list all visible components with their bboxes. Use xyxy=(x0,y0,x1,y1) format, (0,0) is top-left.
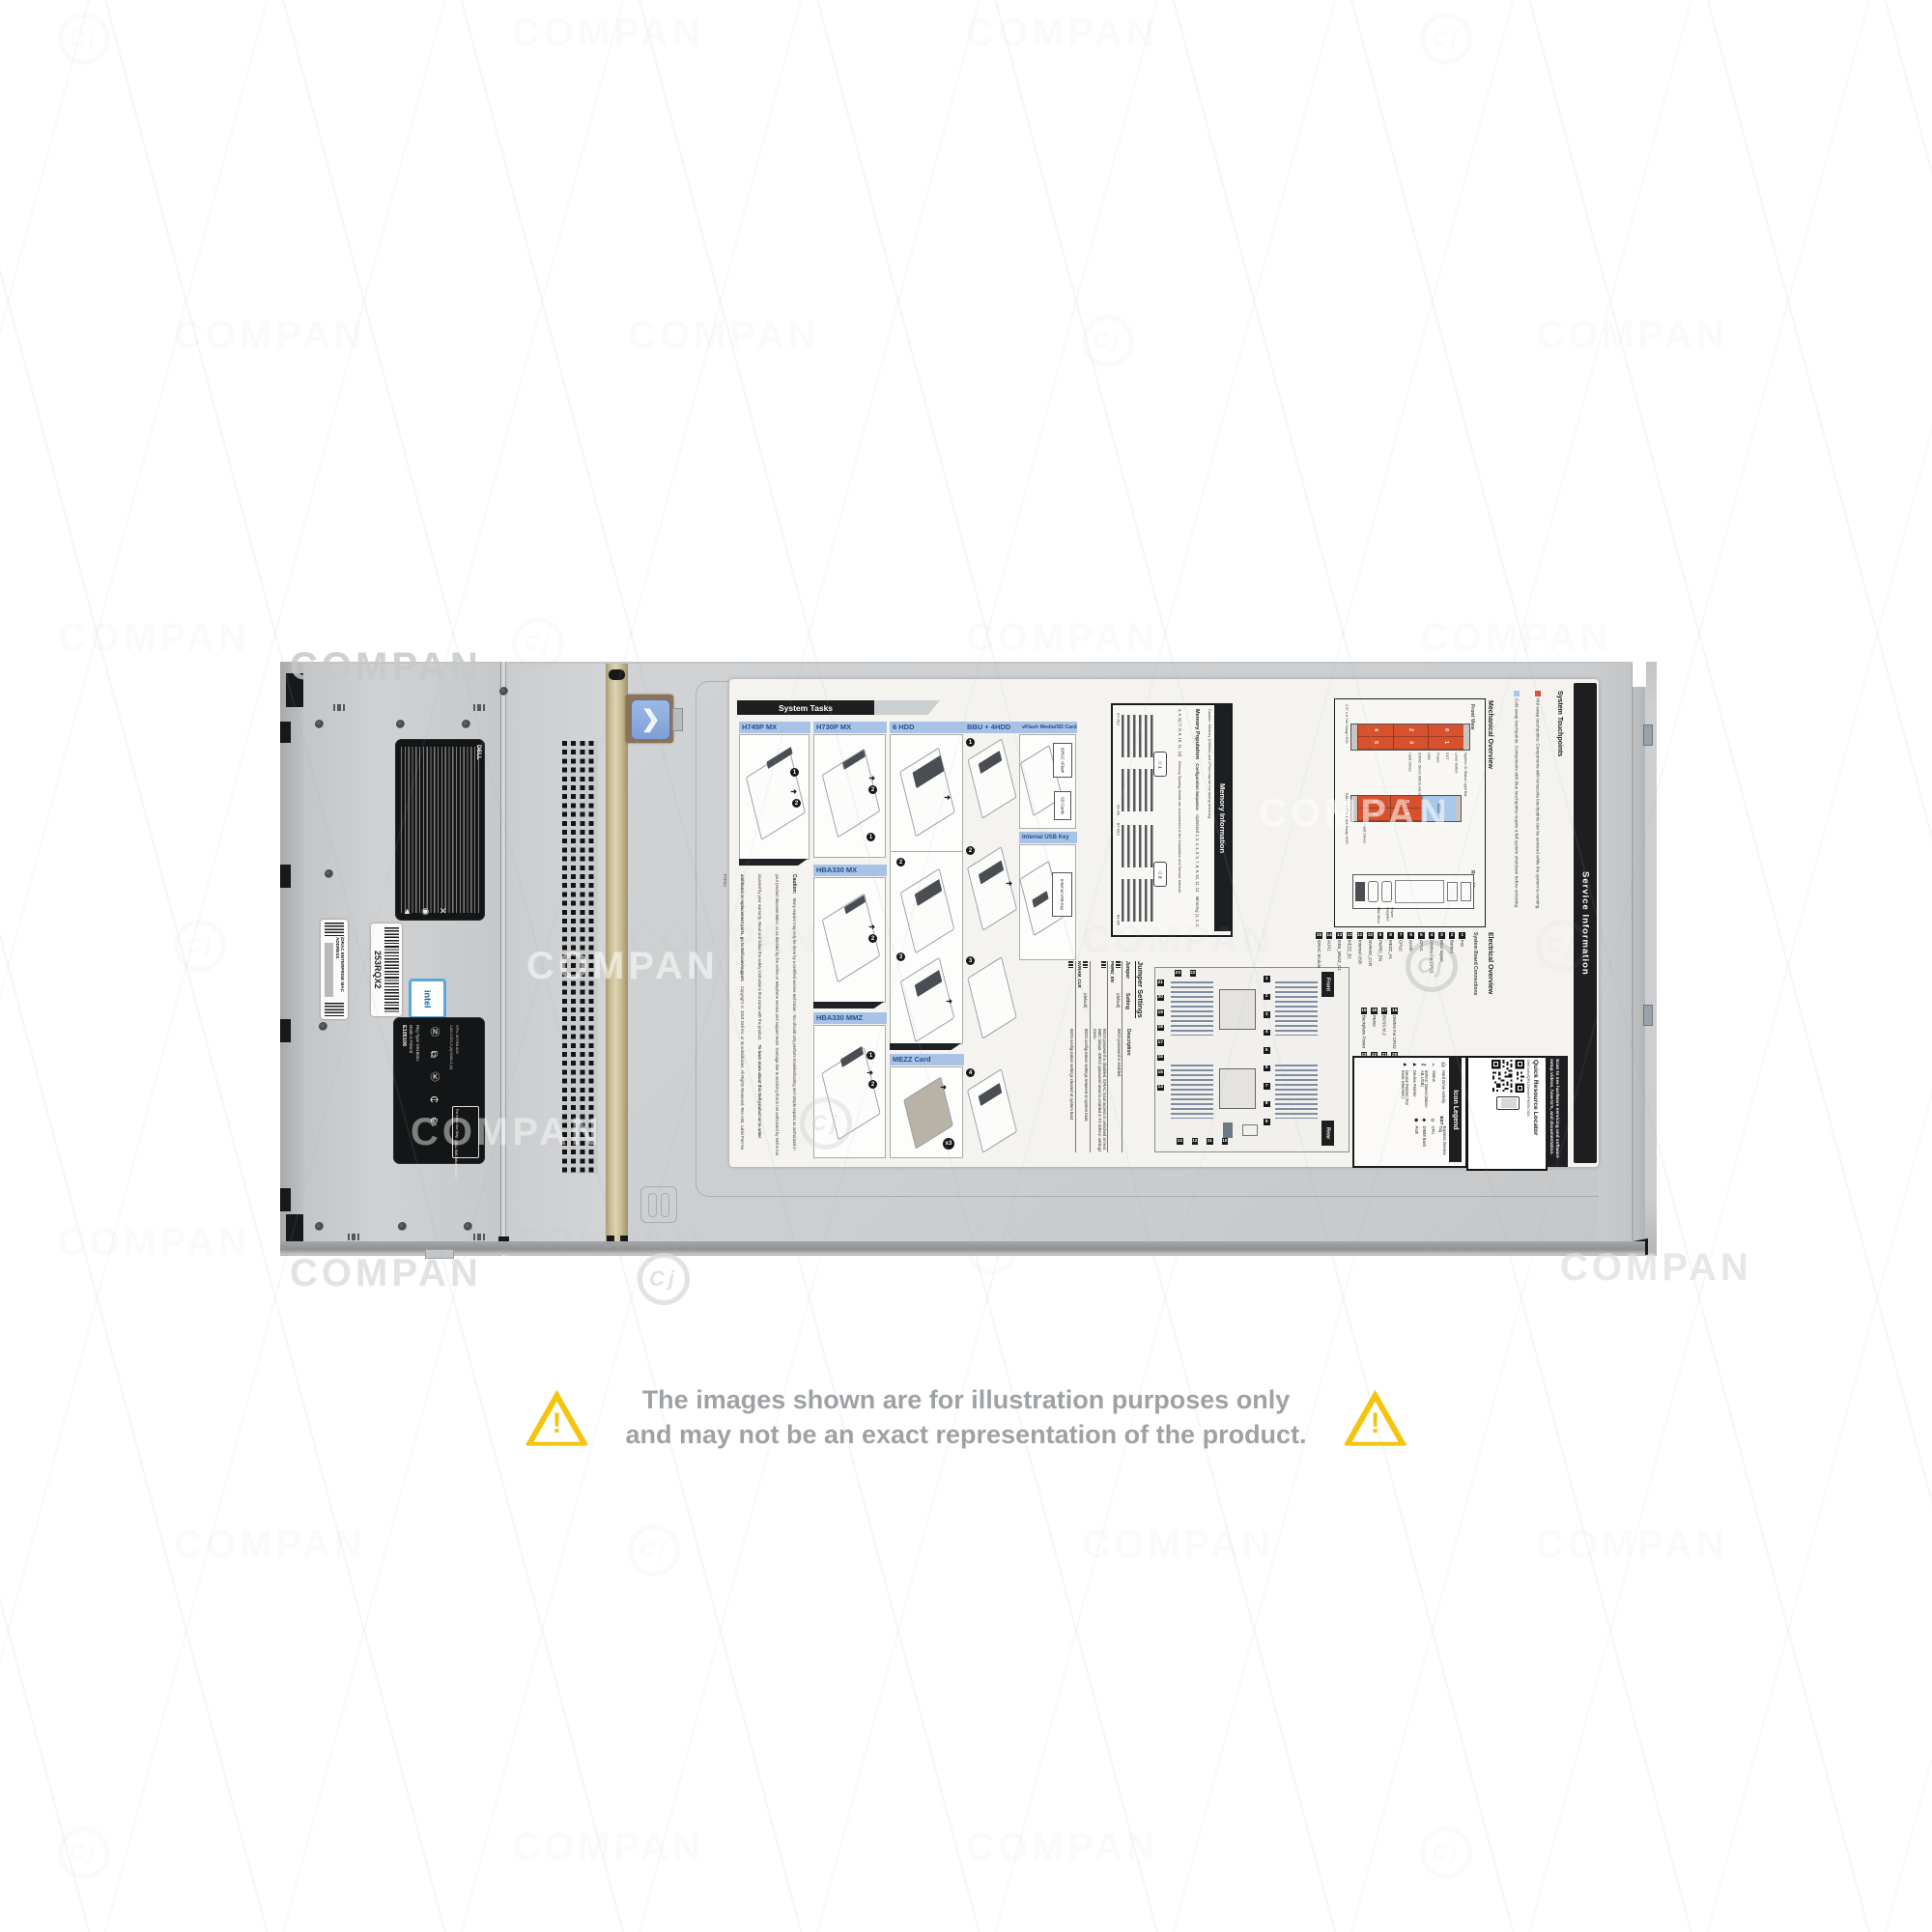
screw xyxy=(315,720,324,728)
memory-title: Memory Information xyxy=(1218,783,1227,853)
legend-icon: ▲ xyxy=(1402,1061,1407,1068)
hinge-bolt xyxy=(609,669,625,680)
callout-label: System ID Status Light Bar xyxy=(1463,753,1467,791)
jumper-pin-icon xyxy=(1116,961,1121,968)
rivet xyxy=(348,1234,359,1240)
board-dimm-slats xyxy=(1275,1065,1318,1119)
scan-band: Scan to see hardware servicing and softw… xyxy=(1546,1056,1568,1167)
regulatory-icons: ▲ ◉ ✕ xyxy=(403,906,450,917)
reg-type: Reg Type: E04B001 xyxy=(415,1025,420,1061)
jumper-row: BIOS password is disabled. iDRAC local a… xyxy=(1092,961,1108,1152)
electrical-item: 3 BBU Signal xyxy=(1436,932,1447,990)
memory-information-box: Memory Information Caution: Memory (DIMM… xyxy=(1111,703,1233,937)
idrac-mac-sticker: iDRAC ENTERPRISE MAC ADDRESS xyxy=(321,920,348,1019)
legend-icon: ◆ xyxy=(1421,1116,1427,1123)
icon-legend-title: Icon Legend xyxy=(1452,1090,1459,1129)
bezel-tab xyxy=(280,865,291,888)
electrical-item: 9 PWRD_EN xyxy=(1376,932,1386,990)
cpu-box: ◇ 2 xyxy=(1153,862,1167,887)
screw xyxy=(396,720,405,728)
service-label: System Tasks H745P MX 1 ➜ 2 Caution: Man… xyxy=(729,679,1599,1167)
india-box: For India Use Only DELL EMC Model: E48S xyxy=(452,1106,479,1158)
callout-label: Hard Drives xyxy=(1407,753,1412,791)
qrl-title: Quick Resource Locator xyxy=(1532,1060,1539,1162)
task-panel: 2 3 ➜ xyxy=(890,851,963,1044)
bbu-text: BBU xyxy=(1437,804,1442,813)
bottom-tab xyxy=(425,1249,454,1259)
task-panel: ➜2 xyxy=(813,877,886,1003)
electrical-item: 13 MINI_MEZZ_C1 xyxy=(1334,932,1345,990)
callout-text: SD Cards xyxy=(1061,797,1065,814)
product-photo-page: CjCOMPANCOMPANCjCOMPANCOMPANCjCOMPANCOMP… xyxy=(0,0,1932,1932)
diag1-label: 2.5" x 6 Hot Swap HDD xyxy=(1338,704,1349,760)
board-badge: 9 xyxy=(1264,1119,1270,1125)
mac-barcode xyxy=(325,1003,344,1016)
board-badge: 13 xyxy=(1177,1138,1183,1145)
cold-swap-bullet xyxy=(1514,691,1520,696)
front-view-callouts: System ID Status Light BarLever ButtonES… xyxy=(1353,753,1467,791)
legend-icon: ▲ xyxy=(1411,1061,1417,1068)
watermark-text: COMPAN xyxy=(1536,1523,1728,1567)
board-badge: 5 xyxy=(1264,1047,1270,1054)
drive-cell: 2 3 xyxy=(1357,796,1390,821)
board-badge: 18 xyxy=(1157,1025,1164,1032)
board-badge: 22 xyxy=(1190,970,1197,977)
board-badge: 23 xyxy=(1175,970,1181,977)
task-header-bbu4hdd: BBU + 4HDD xyxy=(964,722,1019,733)
right-cap-cut xyxy=(1633,662,1646,687)
x3-badge: x3 xyxy=(943,1138,954,1150)
panel-shadow-bar xyxy=(739,859,808,866)
screw xyxy=(325,869,333,878)
legend-item: ◇ CPU xyxy=(1430,1116,1435,1159)
rear-view-callouts: Power SuppliesMini Mezz xyxy=(1355,907,1394,924)
service-tag-text: 253RQX2 xyxy=(373,933,383,1007)
right-end-cap xyxy=(1599,664,1645,1244)
panel-shadow-bar xyxy=(890,1043,961,1050)
callout-idrac-vflash: iDRAC vFlash xyxy=(1053,743,1072,778)
task-header-hba330mmz: HBA330 MMZ xyxy=(813,1012,887,1024)
electrical-item: 7 CPU2 xyxy=(1396,932,1406,990)
electrical-item: 17 BOSS M.2 xyxy=(1379,1008,1390,1052)
callout-internal-usb: Internal USB Key xyxy=(1052,872,1072,917)
board-connector xyxy=(1242,1124,1258,1136)
board-dimm-slats xyxy=(1275,981,1318,1036)
rivet xyxy=(333,704,345,711)
task-header-hba330mx: HBA330 MX xyxy=(813,865,887,876)
jumper-col-header: Jumper xyxy=(1124,961,1130,990)
board-badge: 17 xyxy=(1157,1039,1164,1046)
callout-text: iDRAC vFlash xyxy=(1061,748,1065,773)
qrl-box: Quick Resource Locator Dell.com/QRL/Serv… xyxy=(1466,1056,1548,1171)
watermark-text: COMPAN xyxy=(512,1826,704,1869)
legend-item: ◉ Path xyxy=(1413,1116,1419,1159)
board-badge: 2 xyxy=(1264,994,1270,1001)
task-panel: ➜ xyxy=(890,734,963,852)
legend-item: ▲ Device Pointer xyxy=(1411,1061,1417,1112)
board-badge: 19 xyxy=(1157,1009,1164,1016)
front-view-callouts2: Hard Drives xyxy=(1362,824,1420,853)
callout-label: USB xyxy=(1426,753,1431,791)
watermark-text: COMPAN xyxy=(512,12,704,55)
board-badge: 7 xyxy=(1264,1083,1270,1090)
memory-note: Memory Sparing details are documented in… xyxy=(1178,761,1182,894)
mac-blur xyxy=(325,943,333,997)
board-badge: 4 xyxy=(1264,1030,1270,1037)
dimm-slots xyxy=(1122,715,1156,757)
legend-icon: ⚷ xyxy=(1420,1061,1427,1068)
mac-barcode xyxy=(325,923,344,936)
panel-seam xyxy=(500,662,509,1256)
memory-title-band: Memory Information xyxy=(1214,705,1231,931)
x3-text: x3 xyxy=(946,1141,952,1147)
board-badge: 15 xyxy=(1157,1069,1164,1076)
rivet xyxy=(473,1234,485,1240)
disclaimer-text: The images shown are for illustration pu… xyxy=(625,1383,1306,1452)
release-button[interactable]: ❯ xyxy=(631,699,670,740)
memory-population-title: Memory Population xyxy=(1194,709,1200,759)
watermark-text: COMPAN xyxy=(58,616,250,660)
model-text: DELL EMC Model: E48S xyxy=(454,1140,458,1178)
screw xyxy=(315,1222,324,1231)
board-connector xyxy=(1223,1122,1233,1138)
certification-label: E105106 Made in Poland Reg Type: E04B001… xyxy=(393,1017,485,1164)
watermark-logo-icon: Cj xyxy=(1420,1826,1472,1879)
electrical-item: 18 PERC xyxy=(1369,1008,1379,1052)
cpu-number: 2 xyxy=(1158,876,1163,879)
electrical-item: 10 NVRAM_CLR xyxy=(1365,932,1376,990)
watermark-text: COMPAN xyxy=(1082,1523,1274,1567)
watermark-text: COMPAN xyxy=(58,1221,250,1264)
cpu-number: 1 xyxy=(1158,766,1163,769)
legend-item: ⚷ iDRAC Direct (Micro-AB USB) xyxy=(1419,1061,1428,1112)
system-board-diagram: 2322 2120191817161514 123456789 13121110 xyxy=(1154,967,1350,1152)
task-panel: Internal USB Key xyxy=(1019,844,1076,960)
board-badge: 14 xyxy=(1157,1085,1164,1092)
electrical-item: 2 Battery xyxy=(1447,932,1458,990)
electrical-item: 14 AUX1 xyxy=(1324,932,1335,990)
ices-text: CAN ICES-3 (A)/NMB-3 (A) xyxy=(449,1025,453,1069)
board-badge: 1 xyxy=(1264,976,1270,982)
callout-sd-cards: SD Cards xyxy=(1054,791,1071,820)
board-badge: 21 xyxy=(1157,980,1164,986)
jumper-col-header: Setting xyxy=(1124,993,1130,1026)
electrical-item: 1 FIO xyxy=(1457,932,1467,990)
brand-text: DELL xyxy=(475,745,481,760)
task-panel: 1➜ 2 xyxy=(813,1025,886,1158)
electrical-item: 6 AUX0 xyxy=(1406,932,1416,990)
front-view-diagram-6hdd: 4 5 2 3 0 1 xyxy=(1350,724,1470,751)
electrical-items-row1: 1 FIO 2 Battery 3 BBU Signal 4 xyxy=(1321,932,1467,990)
watermark-text: COMPAN xyxy=(966,12,1158,55)
chassis-tab xyxy=(1643,724,1653,746)
qrl-url: Dell.com/QRL/Server/PEMX740c xyxy=(1526,1060,1531,1162)
dimm-slots xyxy=(1122,769,1156,811)
callout-label: Hard Drives xyxy=(1362,824,1367,853)
bbu-cell: BBU xyxy=(1422,796,1456,821)
watermark-logo-icon: Cj xyxy=(1420,12,1472,65)
bezel-tab xyxy=(280,722,291,743)
task-header-mezz: MEZZ Card xyxy=(890,1054,964,1065)
ul-number: E105106 xyxy=(401,1025,407,1046)
diag2-label: BBU + 2.5" x 4 Hot Swap HDD xyxy=(1338,793,1349,861)
jumper-rows: PWRD_EN (default) BIOS password is enabl… xyxy=(1067,961,1122,1152)
callout-label: Lever Button xyxy=(1454,753,1459,791)
disclaimer-line2: and may not be an exact representation o… xyxy=(625,1418,1306,1453)
watermark-text: COMPAN xyxy=(174,314,366,357)
electrical-item: 16 DIMMs For CPU2 xyxy=(1389,1008,1400,1052)
chassis-bottom-edge xyxy=(280,1241,1645,1255)
task-panel: ➜ x3 xyxy=(890,1066,963,1158)
task-header-usbkey: Internal USB Key xyxy=(1019,832,1077,843)
screw xyxy=(499,687,508,696)
legend-icon: EST xyxy=(1439,1116,1444,1123)
regulatory-microtext xyxy=(401,747,479,913)
bezel-tab xyxy=(280,1019,291,1042)
phone-icon xyxy=(1496,1096,1520,1110)
drive-cells: 4 5 2 3 0 1 xyxy=(1357,724,1463,750)
jumper-pin-icon xyxy=(1101,961,1106,968)
dimm-cluster-1: A7–A12 A1–A6 ◇ 1 xyxy=(1117,713,1167,815)
board-badges-left: 2120191817161514 xyxy=(1157,980,1164,1091)
callout-label: Power xyxy=(1435,753,1440,791)
system-tasks-header: System Tasks xyxy=(737,700,874,715)
jumper-row: BIOS configuration settings cleared at s… xyxy=(1067,961,1076,1152)
legend-items-right: EST Express Service Tag ◇ CPU xyxy=(1398,1116,1446,1159)
electrical-item: 8 MEZZ_A1 xyxy=(1385,932,1396,990)
electrical-item: 12 MEZZ_B1 xyxy=(1345,932,1355,990)
intel-logo-text: intel xyxy=(423,990,433,1009)
service-tag-barcode xyxy=(384,927,399,1012)
screw xyxy=(398,1222,407,1231)
cpu-box: ◇ 1 xyxy=(1153,752,1167,777)
board-badges-mid: 123456789 xyxy=(1264,976,1270,1125)
dimm-cluster-2: B7–B12 B1–B6 ◇ 2 xyxy=(1117,823,1167,925)
board-badges-bottom: 13121110 xyxy=(1177,1138,1228,1145)
warning-triangle-icon: ! xyxy=(1344,1390,1407,1446)
qr-code xyxy=(1492,1060,1524,1093)
caution-body: Many repairs may only be done by a certi… xyxy=(757,874,797,1155)
jumper-row: NVRAM_CLR (default) BIOS configuration s… xyxy=(1077,961,1091,1152)
dimm-group-label: A7–A12 xyxy=(1116,713,1120,725)
right-cap-seam xyxy=(1632,664,1634,1244)
callout-label: EST xyxy=(1444,753,1449,791)
jumper-title: Jumper Settings xyxy=(1135,961,1145,1018)
board-badge: 16 xyxy=(1157,1055,1164,1062)
icon-legend-box: Icon Legend ⛁ Hard Drive Activity xyxy=(1352,1056,1467,1168)
service-info-title-band: Service Information xyxy=(1574,683,1597,1163)
drive-cell: 0 1 xyxy=(1428,724,1463,750)
rear-tag-text: Rear xyxy=(1325,1127,1331,1139)
dimm-slots xyxy=(1122,879,1156,922)
caution-title: Caution: xyxy=(791,874,797,894)
screw xyxy=(462,720,470,728)
callout-label: Mini Mezz xyxy=(1376,907,1380,924)
india-text: For India Use Only xyxy=(455,1109,459,1138)
jumper-settings-section: Jumper Settings Jumper Setting Descripti… xyxy=(1038,961,1151,1152)
regulatory-label: DELL ▲ ◉ ✕ xyxy=(395,739,485,921)
legend-item: ⛁ Hard Drive Activity xyxy=(1439,1061,1446,1112)
watermark-logo-icon: Cj xyxy=(58,12,110,65)
task-header-h730p: H730P MX xyxy=(813,722,887,733)
legend-item: ◆ DIMM Bank xyxy=(1421,1116,1427,1159)
board-badges-top: 2322 xyxy=(1175,970,1196,977)
task-panel: iDRAC vFlash SD Cards xyxy=(1019,734,1076,829)
intel-badge: intel xyxy=(409,979,446,1019)
task-header-vflash: vFlash Media/SD Card xyxy=(1019,722,1077,733)
gold-hinge-strip xyxy=(606,664,628,1244)
board-cpu2 xyxy=(1219,1068,1256,1109)
disclaimer: ! The images shown are for illustration … xyxy=(0,1383,1932,1452)
electrical-item: 15 iDRAC Module xyxy=(1314,932,1324,990)
legend-icon: ⛁ xyxy=(1439,1061,1446,1068)
memory-row-optimized: Optimized 1, 2, 3, 4, 5, 6, 7, 8, 9, 10,… xyxy=(1195,814,1200,892)
electrical-item: 4 DIMMs For CPU1 xyxy=(1427,932,1437,990)
system-tasks-header-tab xyxy=(874,700,940,715)
callout-text: Internal USB Key xyxy=(1060,879,1065,910)
legend-icon: ◇ xyxy=(1430,1116,1435,1123)
rear-view-diagram xyxy=(1352,874,1474,909)
icon-legend-title-band: Icon Legend xyxy=(1449,1058,1462,1162)
jumper-pin-icon xyxy=(1068,961,1073,968)
jumper-row: PWRD_EN (default) BIOS password is enabl… xyxy=(1110,961,1123,1152)
watermark-logo-icon: Cj xyxy=(638,1252,690,1305)
drive-cell: 2 3 xyxy=(1393,724,1429,750)
drive-cell: 4 5 xyxy=(1357,724,1393,750)
release-button-frame: ❯ xyxy=(626,695,673,743)
callout-label: Power Supplies xyxy=(1385,907,1394,924)
watermark-logo-icon: Cj xyxy=(174,919,226,972)
scan-text: Scan to see hardware servicing and softw… xyxy=(1548,1059,1559,1165)
dimm-group-label: A1–A6 xyxy=(1116,805,1120,815)
legend-icon: ⌁ xyxy=(1431,1061,1437,1068)
board-badge: 3 xyxy=(1264,1011,1270,1018)
board-badge: 12 xyxy=(1192,1138,1199,1145)
watermark-logo-icon: Cj xyxy=(628,1523,680,1577)
dimm-group-label: B1–B6 xyxy=(1116,915,1120,925)
jumper-col-header: Description xyxy=(1124,1029,1130,1152)
warning-triangle-icon: ! xyxy=(525,1390,588,1446)
memory-config-header: Configuration Sequence xyxy=(1195,763,1200,810)
touchpoints-heading: System Touchpoints xyxy=(1556,691,1563,807)
board-badge: 10 xyxy=(1222,1138,1229,1145)
watermark-text: COMPAN xyxy=(628,314,820,357)
callout-label: iDRAC Direct (Micro-AB USB) xyxy=(1417,753,1422,791)
lid-pill-slots xyxy=(640,1186,677,1223)
chassis-left-edge xyxy=(280,662,303,1256)
board-rear-tag: Rear xyxy=(1321,1121,1334,1146)
disclaimer-line1: The images shown are for illustration pu… xyxy=(625,1383,1306,1418)
dimm-group-label: B7–B12 xyxy=(1116,823,1120,836)
watermark-text: COMPAN xyxy=(966,1826,1158,1869)
task-header-h745p: H745P MX xyxy=(739,722,810,733)
board-dimm-slats xyxy=(1171,981,1213,1036)
board-badge: 20 xyxy=(1157,995,1164,1002)
dimm-slots xyxy=(1122,825,1156,867)
system-tasks-title: System Tasks xyxy=(779,703,833,713)
memory-population-block: Memory Population Configuration Sequence… xyxy=(1169,709,1206,929)
bezel-tab xyxy=(280,1188,291,1211)
board-cpu1 xyxy=(1219,989,1256,1030)
caution-strip: Caution: Many repairs may only be done b… xyxy=(745,874,803,1156)
server-chassis: DELL ▲ ◉ ✕ iDRAC ENTERPRISE MAC ADDRESS … xyxy=(280,662,1657,1256)
electrical-item: 5 CPU1 xyxy=(1416,932,1427,990)
cert-marks: Ⓝ ⧉ Ⓚ ₵ € xyxy=(426,1027,440,1128)
dpn-text: DPN: 807SM A00 xyxy=(455,1025,459,1054)
electrical-item: 11 Internal USB xyxy=(1354,932,1365,990)
screw xyxy=(319,1022,327,1031)
electrical-item: 19 Backplane Power xyxy=(1359,1008,1370,1052)
jumper-pin-icon xyxy=(1083,961,1088,968)
drive-cells: 2 3 0 1 xyxy=(1357,796,1422,821)
board-badge: 6 xyxy=(1264,1065,1270,1072)
vent-grid xyxy=(562,741,598,1174)
drive-cell: 0 1 xyxy=(1390,796,1423,821)
panel-shadow-bar xyxy=(813,1002,884,1009)
board-dimm-slats xyxy=(1171,1065,1213,1119)
watermark-logo-icon: Cj xyxy=(58,1826,110,1879)
task-header-6hdd: 6 HDD xyxy=(890,722,964,733)
task-panel: ➜2 1 xyxy=(813,734,886,858)
mechanical-heading: Mechanical Overview xyxy=(1486,700,1493,855)
board-badge: 8 xyxy=(1264,1101,1270,1108)
service-info-title: Service Information xyxy=(1580,871,1591,976)
task-panel: 1 2 ➜ 3 4 xyxy=(964,734,1016,1156)
board-badge: 11 xyxy=(1207,1138,1213,1145)
service-tag-sticker: 253RQX2 xyxy=(371,923,402,1016)
rivet xyxy=(473,704,485,711)
legend-icon: ◉ xyxy=(1413,1116,1419,1123)
legend-item: ⌁ Status xyxy=(1431,1061,1437,1112)
legend-item: ▲ Device Pointer (For more Direction) xyxy=(1400,1061,1408,1112)
watermark-text: COMPAN xyxy=(966,616,1158,660)
chassis-tab xyxy=(1643,1005,1653,1026)
legend-item: EST Express Service Tag xyxy=(1437,1116,1446,1159)
front-view-diagram-bbu: 2 3 0 1 BBU xyxy=(1350,795,1462,822)
watermark-text: COMPAN xyxy=(174,1523,366,1567)
memory-caution: Caution: Memory (DIMMs) and CPUs may be … xyxy=(1207,709,1211,927)
task-panel: 1 ➜ 2 xyxy=(739,734,810,860)
hot-swap-bullet xyxy=(1535,691,1541,696)
chevron-right-icon: ❯ xyxy=(640,708,660,731)
watermark-text: COMPAN xyxy=(1420,616,1612,660)
mac-label-text: iDRAC ENTERPRISE MAC ADDRESS xyxy=(335,937,345,1005)
made-in: Made in Poland xyxy=(409,1025,413,1053)
watermark-text: COMPAN xyxy=(1536,314,1728,357)
legend-items-left: ⛁ Hard Drive Activity ⌁ Status xyxy=(1398,1061,1446,1112)
button-latch-notch xyxy=(672,708,683,731)
watermark-logo-icon: Cj xyxy=(1082,314,1134,367)
screw xyxy=(464,1222,472,1231)
